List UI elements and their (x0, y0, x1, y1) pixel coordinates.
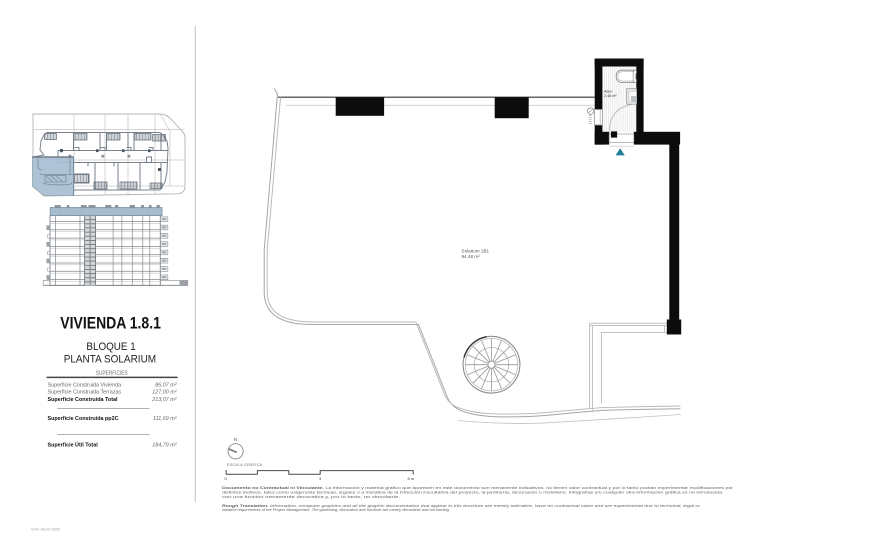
svg-text:ESCALA GRÁFICA: ESCALA GRÁFICA (227, 463, 262, 467)
svg-text:Superficie Construida Vivienda: Superficie Construida Vivienda (48, 383, 122, 389)
svg-text:Superficie Construida Total: Superficie Construida Total (48, 397, 118, 403)
svg-text:213,07 m²: 213,07 m² (151, 397, 176, 403)
svg-text:Solarium 1B1: Solarium 1B1 (462, 249, 490, 254)
svg-text:127,00 m²: 127,00 m² (152, 390, 176, 396)
svg-text:184,79 m²: 184,79 m² (152, 443, 176, 449)
svg-text:94,48 m²: 94,48 m² (462, 254, 481, 259)
svg-text:con una función meramente deco: con una función meramente decorativa y, … (222, 495, 400, 499)
svg-text:initiative requirements of the: initiative requirements of the Project M… (222, 508, 450, 512)
svg-text:2,48 m²: 2,48 m² (604, 94, 617, 98)
svg-text:Superficie Construida Terrazas: Superficie Construida Terrazas (48, 390, 122, 396)
svg-text:Superficie Útil Total: Superficie Útil Total (48, 442, 99, 449)
svg-text:6 m: 6 m (408, 476, 415, 481)
svg-text:PLANTA SOLARIUM: PLANTA SOLARIUM (64, 353, 156, 365)
svg-text:N: N (234, 437, 237, 442)
svg-text:111,69 m²: 111,69 m² (153, 416, 177, 422)
svg-text:VIVIENDA 1.8.1: VIVIENDA 1.8.1 (60, 315, 161, 333)
svg-text:V.03-JULIO 2023: V.03-JULIO 2023 (31, 528, 60, 532)
svg-text:SUPERFICIES: SUPERFICIES (96, 370, 128, 377)
svg-text:Superficie Construida pp2C: Superficie Construida pp2C (48, 416, 119, 422)
svg-text:3: 3 (319, 476, 322, 481)
svg-text:0: 0 (225, 476, 228, 481)
svg-text:86,07 m²: 86,07 m² (155, 383, 176, 389)
svg-text:BLOQUE 1: BLOQUE 1 (86, 341, 135, 353)
